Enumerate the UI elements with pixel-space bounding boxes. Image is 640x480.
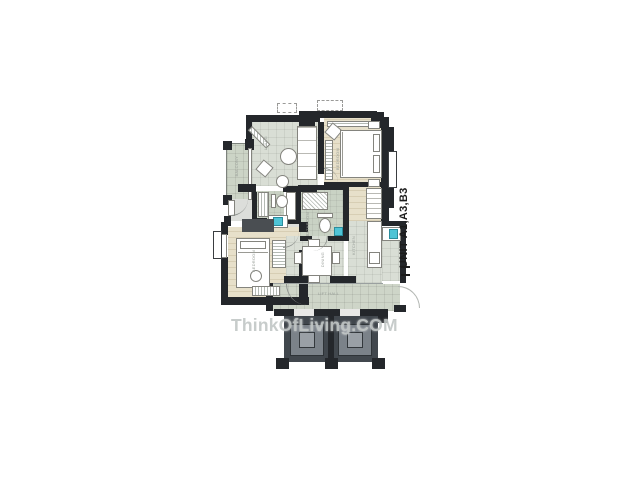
master-blanket-line (342, 132, 343, 176)
balcony-label: BALCONY (235, 156, 239, 177)
master-bedroom-label: BEDROOM (336, 148, 340, 170)
wall-living-bed-divider (318, 122, 324, 174)
bathroom1-sink (334, 227, 343, 236)
wall-right-stub2 (388, 188, 394, 208)
wall-bath1-bottom2 (328, 236, 349, 241)
elevator-foot-2 (325, 358, 338, 369)
corridor-right-door-arc (398, 286, 420, 308)
elevator-foot-3 (372, 358, 385, 369)
wall-bath1-top (298, 185, 345, 190)
dining-chair-left (294, 252, 302, 264)
kitchen-sink (389, 229, 398, 239)
bathroom1-label: BATHROOM (306, 212, 310, 236)
ac-unit-dashed-2 (317, 100, 343, 111)
wall-foyer-bath (252, 192, 257, 220)
wall-top-bedroom (313, 111, 377, 118)
dining-table (302, 246, 332, 276)
living-label: LIVING (264, 136, 268, 150)
kitchen-label: KITCHEN (352, 236, 356, 255)
dining-chair-bottom (308, 275, 320, 283)
elevator-foot-1 (276, 358, 289, 369)
bedroom2-builtin-closet (242, 219, 274, 232)
lift-hall-label: LIFT HALL (318, 292, 339, 296)
ac-ledge-left (213, 231, 222, 259)
wall-balcony-corner1 (223, 141, 232, 150)
nightstand-1 (368, 121, 380, 129)
bedroom2-dresser (252, 286, 280, 296)
bathroom1-toilet (319, 218, 331, 233)
ac-ledge-right (388, 151, 397, 188)
bathroom2-sink (273, 217, 283, 226)
sofa (297, 126, 317, 180)
watermark-text: ThinkOfLiving.COM (231, 315, 403, 336)
master-pillow-1 (373, 134, 380, 152)
dining-chair-right (332, 252, 340, 264)
dressing-wardrobe (366, 188, 382, 219)
unit-label-dashes (401, 266, 410, 276)
bathroom1-shower (302, 192, 328, 210)
unit-label: UNIT A1,A3,B3 (398, 172, 410, 268)
nightstand-2 (368, 179, 380, 187)
master-pillow-2 (373, 155, 380, 173)
bedroom2-pillow (240, 241, 266, 249)
kitchen-stove (369, 252, 380, 264)
bathroom2-toilet (276, 195, 288, 208)
wall-right-stub (388, 127, 394, 151)
wall-bath1-right (343, 186, 349, 240)
bathroom2-shower (258, 192, 269, 217)
floorplan-image: BALCONY LIVING BEDROOM BEDROOM BATHROOM … (0, 0, 640, 480)
bedroom2-label: BEDROOM (252, 250, 256, 272)
ac-unit-dashed-1 (277, 103, 297, 113)
accent-chair-2 (276, 175, 289, 188)
wall-bath-top1 (238, 184, 256, 192)
coffee-table (280, 148, 297, 165)
dining-label: DINING (321, 252, 325, 267)
